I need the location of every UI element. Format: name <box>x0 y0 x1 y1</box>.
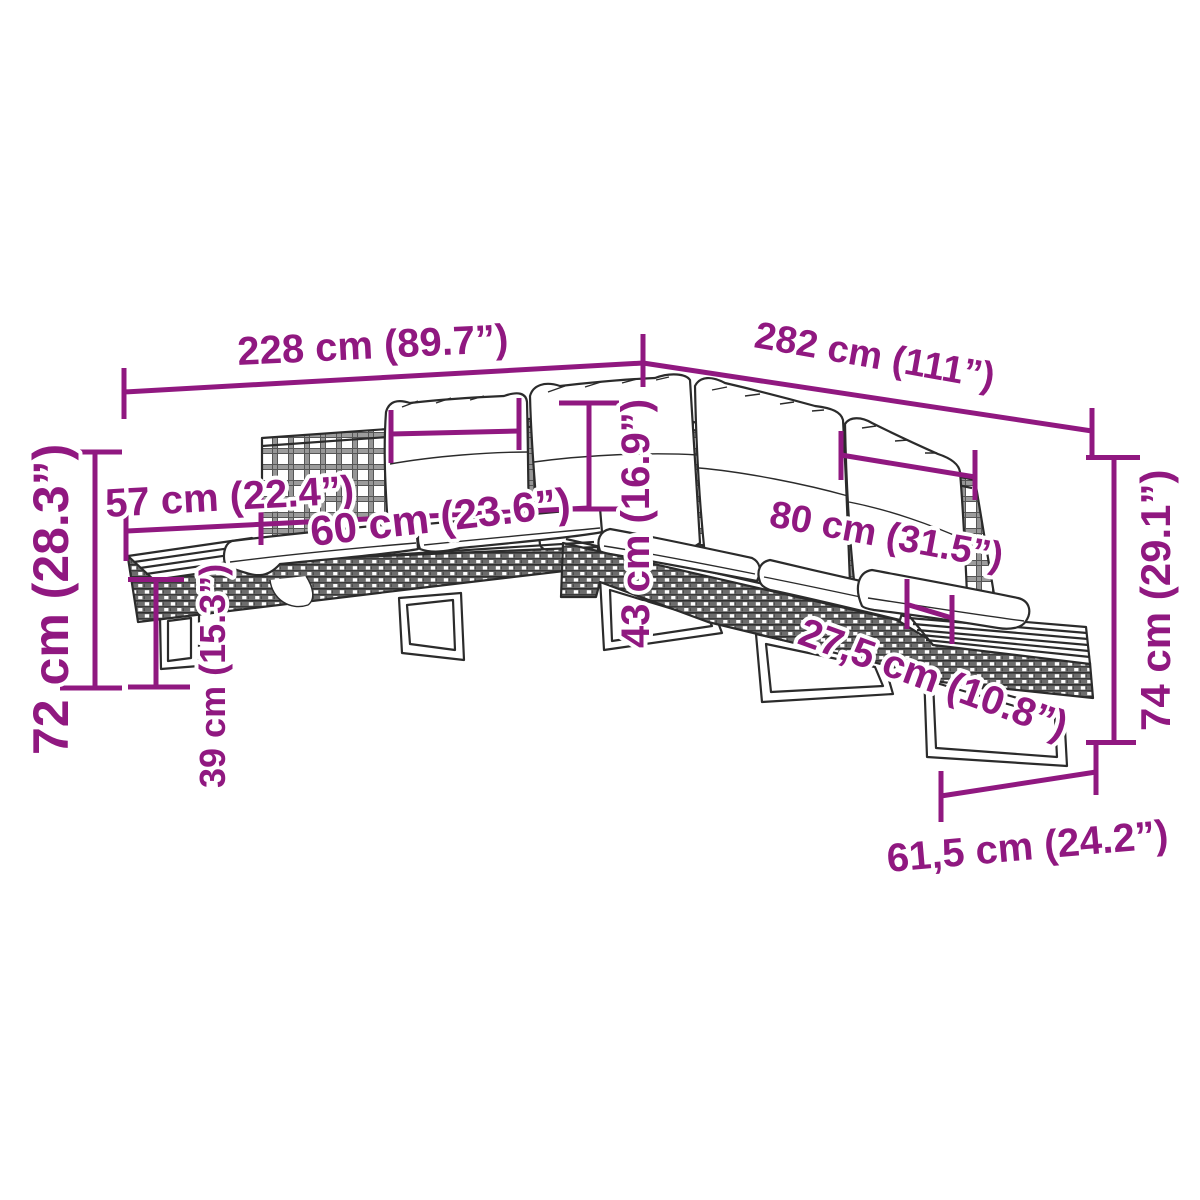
svg-text:39 cm (15.3”): 39 cm (15.3”) <box>192 564 233 788</box>
svg-text:43 cm (16.9”): 43 cm (16.9”) <box>614 399 658 648</box>
svg-text:74 cm (29.1”): 74 cm (29.1”) <box>1132 470 1179 731</box>
svg-text:72 cm (28.3”): 72 cm (28.3”) <box>23 444 79 755</box>
